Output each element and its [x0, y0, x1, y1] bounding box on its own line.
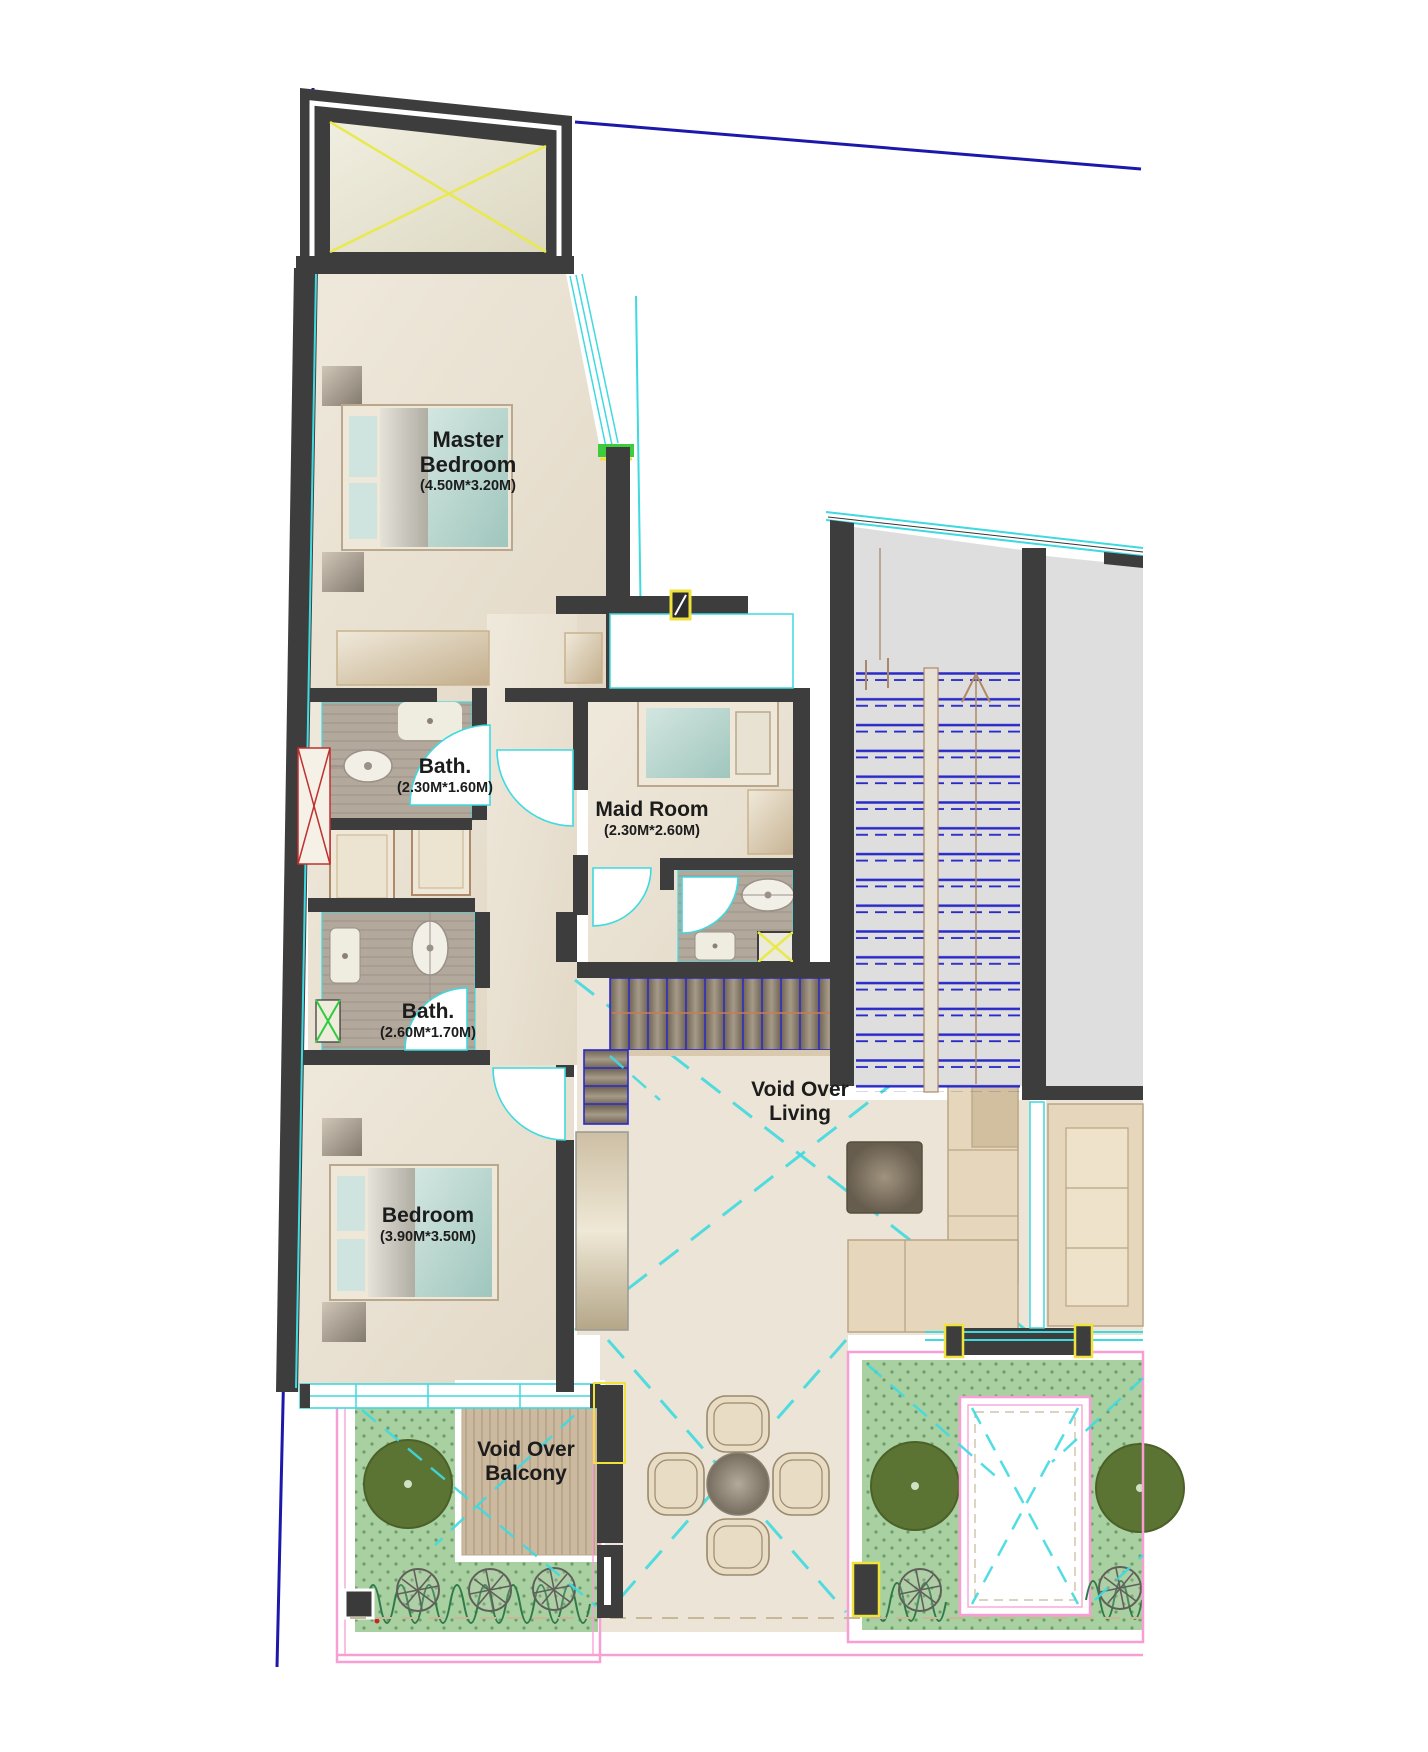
floor-plan-drawing — [0, 0, 1428, 1752]
column-window-slot — [604, 1557, 611, 1605]
bush-icon — [533, 1568, 575, 1610]
room-label-void-over-balcony: Void Over Balcony — [461, 1438, 591, 1485]
garden-column — [853, 1563, 879, 1616]
tree-icon — [871, 1442, 959, 1530]
light-well — [610, 614, 793, 688]
room-name: Master Bedroom — [408, 428, 528, 477]
room-name: Maid Room — [562, 798, 742, 822]
nightstand — [322, 552, 364, 592]
room-size: (2.60M*1.70M) — [353, 1024, 503, 1043]
cabinet — [565, 633, 602, 683]
floor-plan-page: Master Bedroom (4.50M*3.20M) Bath. (2.30… — [0, 0, 1428, 1752]
service-shaft-green — [316, 1000, 340, 1042]
chair-icon — [707, 1519, 769, 1575]
room-name: Bath. — [370, 755, 520, 779]
pillow — [348, 415, 378, 478]
room-size: (2.30M*1.60M) — [370, 779, 520, 798]
bed-maid — [638, 700, 778, 786]
room-size: (2.30M*2.60M) — [562, 822, 742, 841]
chair-icon — [648, 1453, 704, 1515]
chair-icon — [773, 1453, 829, 1515]
room-label-master-bath: Bath. (2.30M*1.60M) — [370, 755, 520, 797]
dresser — [337, 631, 489, 685]
door-marker — [671, 591, 690, 619]
terrace-column — [1075, 1325, 1092, 1357]
nightstand — [322, 1118, 362, 1156]
planter-void — [960, 1397, 1090, 1615]
room-label-maid-room: Maid Room (2.30M*2.60M) — [562, 798, 742, 840]
room-size: (4.50M*3.20M) — [408, 477, 528, 496]
elevator-shaft — [300, 88, 572, 274]
duct-shaft — [758, 932, 793, 962]
nightstand — [322, 366, 362, 406]
red-marker — [375, 1619, 380, 1624]
room-name: Void Over Living — [735, 1078, 865, 1125]
stair-lower-flight — [584, 1050, 628, 1124]
dining-table — [707, 1453, 769, 1515]
garden-right — [848, 1352, 1184, 1642]
bush-icon — [899, 1569, 941, 1611]
room-size: (3.90M*3.50M) — [348, 1228, 508, 1247]
stair-divider — [924, 668, 938, 1092]
nightstand — [322, 1302, 366, 1342]
sofa-right — [1048, 1104, 1143, 1326]
side-window-strip — [1030, 1102, 1044, 1328]
bush-icon — [1099, 1567, 1141, 1609]
chair-icon — [707, 1396, 769, 1452]
tree-icon — [1096, 1444, 1184, 1532]
bush-icon — [469, 1569, 511, 1611]
pillow — [348, 482, 378, 540]
corner-column — [345, 1590, 373, 1618]
room-name: Void Over Balcony — [461, 1438, 591, 1485]
room-label-second-bath: Bath. (2.60M*1.70M) — [353, 1000, 503, 1042]
garden-left — [337, 1380, 605, 1662]
room-label-master-bedroom: Master Bedroom (4.50M*3.20M) — [408, 428, 528, 496]
room-name: Bedroom — [348, 1204, 508, 1228]
pillow — [736, 712, 770, 774]
bedroom-window-band — [300, 1384, 600, 1408]
terrace-column — [945, 1325, 963, 1357]
bush-icon — [397, 1569, 439, 1611]
neighbor-area — [1046, 556, 1143, 1086]
service-shaft-red — [298, 748, 330, 864]
room-name: Bath. — [353, 1000, 503, 1024]
tree-icon — [364, 1440, 452, 1528]
coffee-table — [847, 1142, 922, 1213]
tall-cabinet — [576, 1132, 628, 1330]
room-label-bedroom: Bedroom (3.90M*3.50M) — [348, 1204, 508, 1246]
room-label-void-over-living: Void Over Living — [735, 1078, 865, 1125]
